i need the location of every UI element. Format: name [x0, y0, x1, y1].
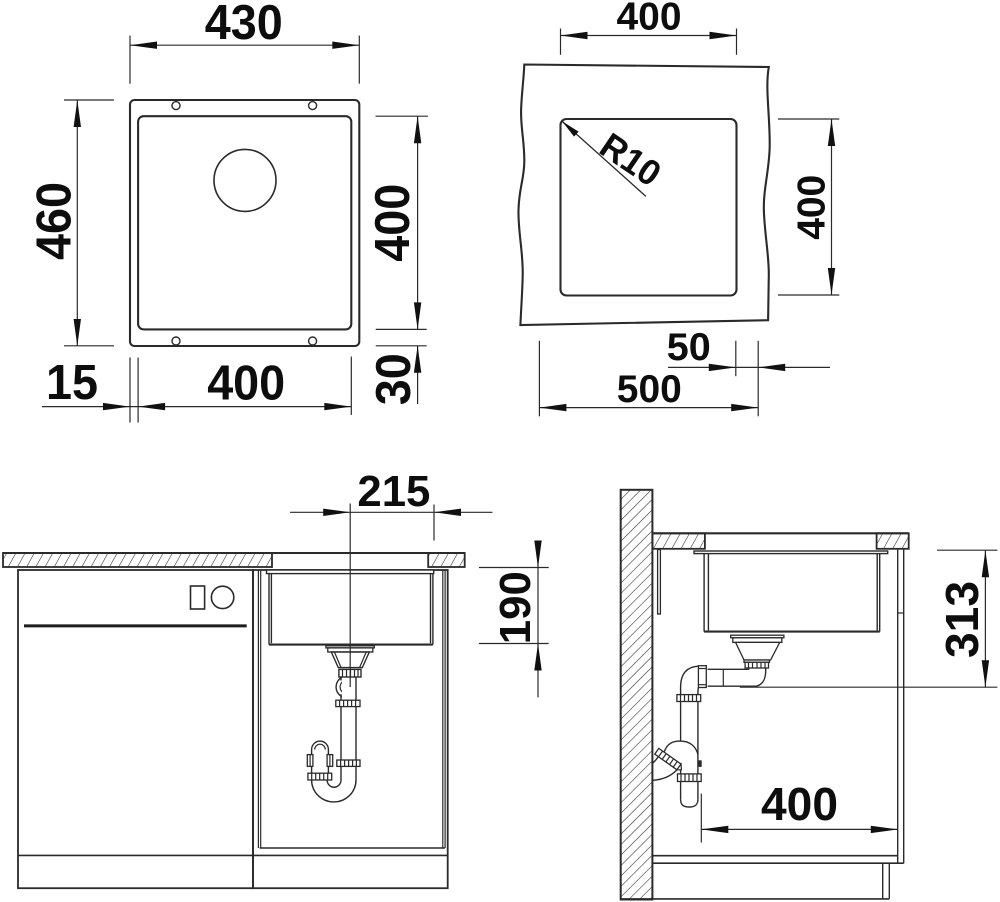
svg-text:215: 215: [357, 467, 430, 516]
svg-text:430: 430: [205, 0, 283, 50]
svg-text:460: 460: [27, 182, 81, 260]
svg-text:400: 400: [366, 184, 420, 262]
svg-text:400: 400: [761, 778, 838, 830]
svg-text:400: 400: [617, 0, 682, 39]
svg-text:400: 400: [207, 357, 285, 411]
svg-text:50: 50: [667, 326, 711, 369]
svg-text:15: 15: [46, 356, 98, 410]
svg-text:500: 500: [617, 368, 682, 411]
svg-text:313: 313: [936, 581, 988, 658]
svg-text:190: 190: [491, 571, 540, 644]
svg-text:30: 30: [367, 353, 421, 405]
svg-text:400: 400: [790, 175, 833, 240]
